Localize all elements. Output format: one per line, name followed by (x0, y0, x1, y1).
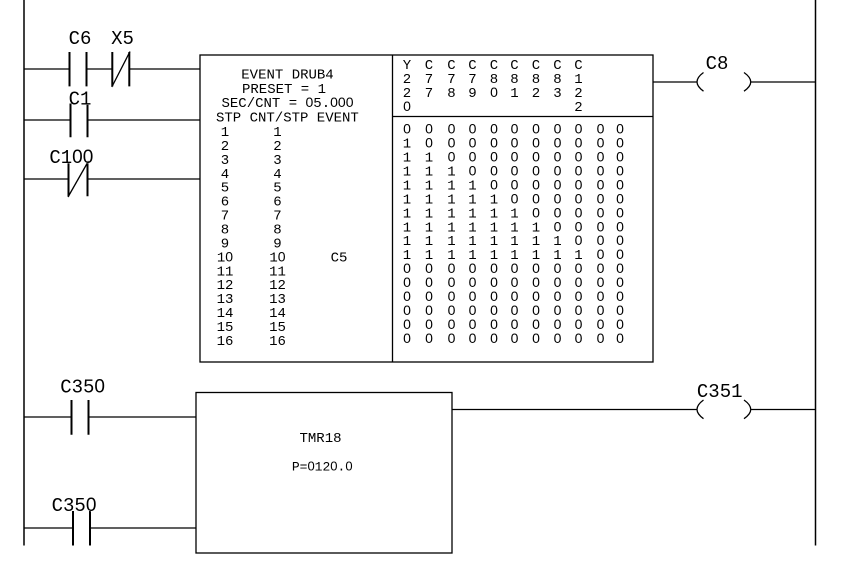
svg-text:1: 1 (510, 86, 518, 102)
svg-text:C1: C1 (69, 89, 92, 111)
svg-text:0: 0 (532, 330, 540, 346)
svg-text:C350: C350 (52, 495, 97, 517)
svg-text:0: 0 (425, 134, 433, 150)
svg-text:0: 0 (554, 218, 562, 234)
svg-text:3: 3 (553, 86, 561, 102)
svg-text:0: 0 (575, 232, 583, 248)
svg-text:0: 0 (575, 330, 583, 346)
svg-text:STP CNT/STP EVENT: STP CNT/STP EVENT (216, 110, 359, 126)
svg-text:0: 0 (597, 330, 605, 346)
svg-text:0: 0 (490, 84, 498, 100)
svg-text:C351: C351 (697, 381, 743, 403)
svg-text:0: 0 (403, 98, 411, 114)
svg-text:0: 0 (448, 330, 456, 346)
svg-text:0: 0 (403, 330, 411, 346)
svg-text:C5: C5 (331, 250, 348, 266)
svg-text:C8: C8 (706, 53, 729, 75)
svg-text:7: 7 (425, 86, 433, 102)
svg-text:0: 0 (469, 330, 477, 346)
svg-text:0: 0 (469, 162, 477, 178)
svg-text:X5: X5 (111, 28, 134, 50)
svg-text:2: 2 (574, 100, 582, 116)
svg-text:9: 9 (468, 86, 476, 102)
svg-text:P=0120.0: P=0120.0 (292, 459, 353, 475)
svg-text:16: 16 (269, 334, 286, 350)
svg-text:8: 8 (447, 86, 455, 102)
svg-text:0: 0 (490, 176, 498, 192)
svg-text:C6: C6 (69, 28, 92, 50)
svg-text:0: 0 (532, 204, 540, 220)
svg-text:0: 0 (448, 148, 456, 164)
svg-text:C350: C350 (60, 377, 105, 399)
svg-text:0: 0 (616, 330, 624, 346)
svg-text:2: 2 (532, 86, 540, 102)
svg-text:0: 0 (403, 120, 411, 136)
svg-text:0: 0 (511, 330, 519, 346)
svg-text:16: 16 (217, 334, 234, 350)
svg-text:0: 0 (425, 330, 433, 346)
svg-text:TMR18: TMR18 (299, 431, 341, 447)
svg-text:0: 0 (511, 190, 519, 206)
svg-text:0: 0 (490, 330, 498, 346)
svg-text:C100: C100 (49, 147, 93, 169)
svg-text:0: 0 (554, 330, 562, 346)
